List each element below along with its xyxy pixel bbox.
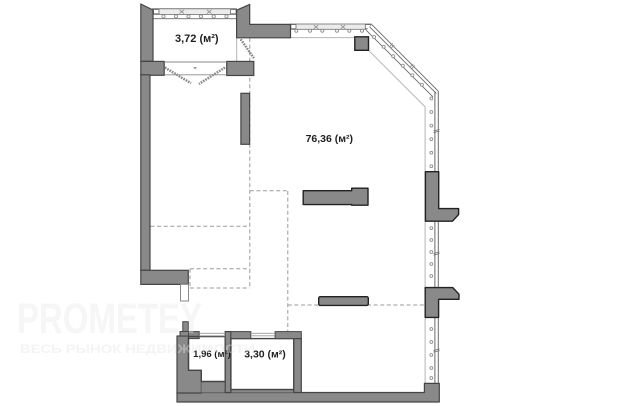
svg-text:76,36 (м²): 76,36 (м²) <box>306 133 353 145</box>
svg-text:ВЕСЬ РЫНОК НЕДВИЖИМОСТИ: ВЕСЬ РЫНОК НЕДВИЖИМОСТИ <box>20 342 255 356</box>
svg-text:PROMETEY: PROMETEY <box>17 295 202 343</box>
svg-text:3,72 (м²): 3,72 (м²) <box>175 33 219 45</box>
